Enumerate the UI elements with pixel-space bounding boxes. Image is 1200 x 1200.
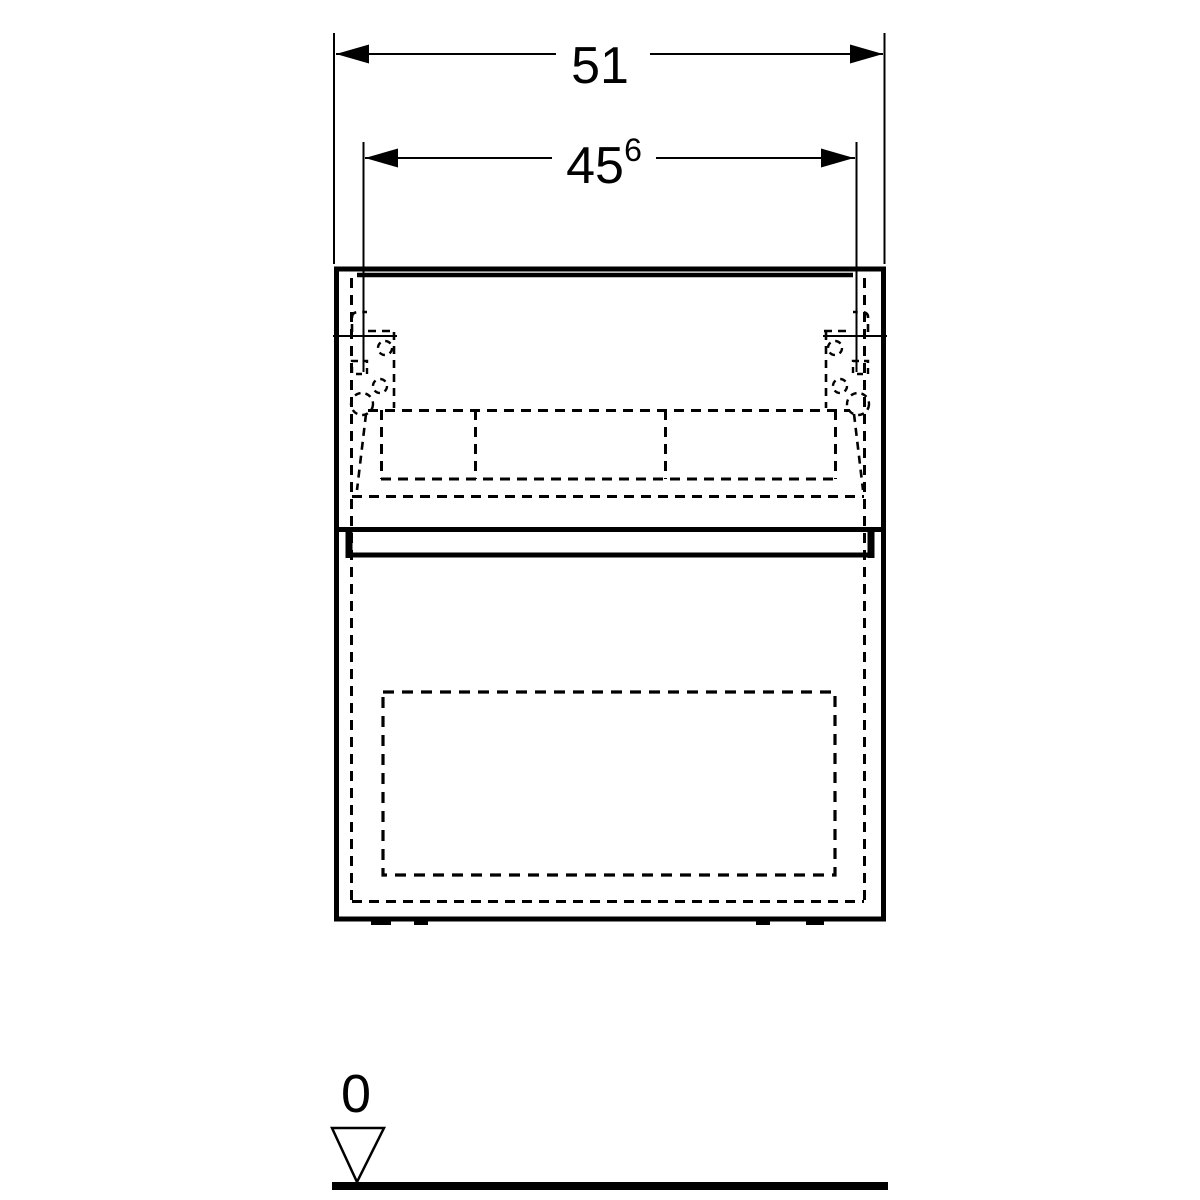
wall-bracket-left-dashed [351, 312, 396, 490]
bracket-right-screw-1 [828, 341, 842, 355]
arrow-left-icon [336, 45, 369, 64]
wall-bracket-right-dashed [824, 312, 869, 490]
drawer-front-inner-dashed-rect [383, 692, 835, 875]
arrow-right-icon [821, 149, 854, 168]
arrow-right-icon [850, 45, 883, 64]
drawer-box-hidden-outline [368, 410, 850, 479]
drawer-front-hidden-panel [383, 692, 835, 875]
foot-glide-4 [806, 919, 824, 925]
technical-drawing: 51 45 6 0 [0, 0, 1200, 1200]
bracket-left-diagonal [357, 414, 366, 490]
bracket-left-screw-2 [373, 379, 387, 393]
cabinet-outer-rect [337, 269, 884, 919]
datum-triangle-icon [332, 1128, 384, 1182]
dimension-total-width-label: 51 [571, 37, 629, 95]
cabinet-interior-dashed-outline [352, 278, 865, 902]
foot-glide-2 [414, 919, 428, 925]
foot-glide-3 [756, 919, 770, 925]
foot-glide-1 [371, 919, 391, 925]
arrow-left-icon [365, 149, 398, 168]
bracket-left-screw-1 [378, 341, 392, 355]
dimension-fixing-width-superscript: 6 [624, 132, 642, 168]
bracket-right-screw-2 [833, 379, 847, 393]
bracket-left-hook [352, 312, 367, 332]
datum-level-label: 0 [341, 1064, 371, 1124]
bracket-left-plate [352, 361, 367, 374]
dimension-fixing-width-label: 45 [566, 137, 624, 195]
bracket-right-diagonal [854, 414, 863, 490]
dimension-fixing-width: 45 6 [364, 132, 857, 372]
drawing-canvas: 51 45 6 0 [0, 0, 1200, 1200]
cabinet-outline [336, 269, 884, 925]
datum-level: 0 [332, 1064, 888, 1186]
